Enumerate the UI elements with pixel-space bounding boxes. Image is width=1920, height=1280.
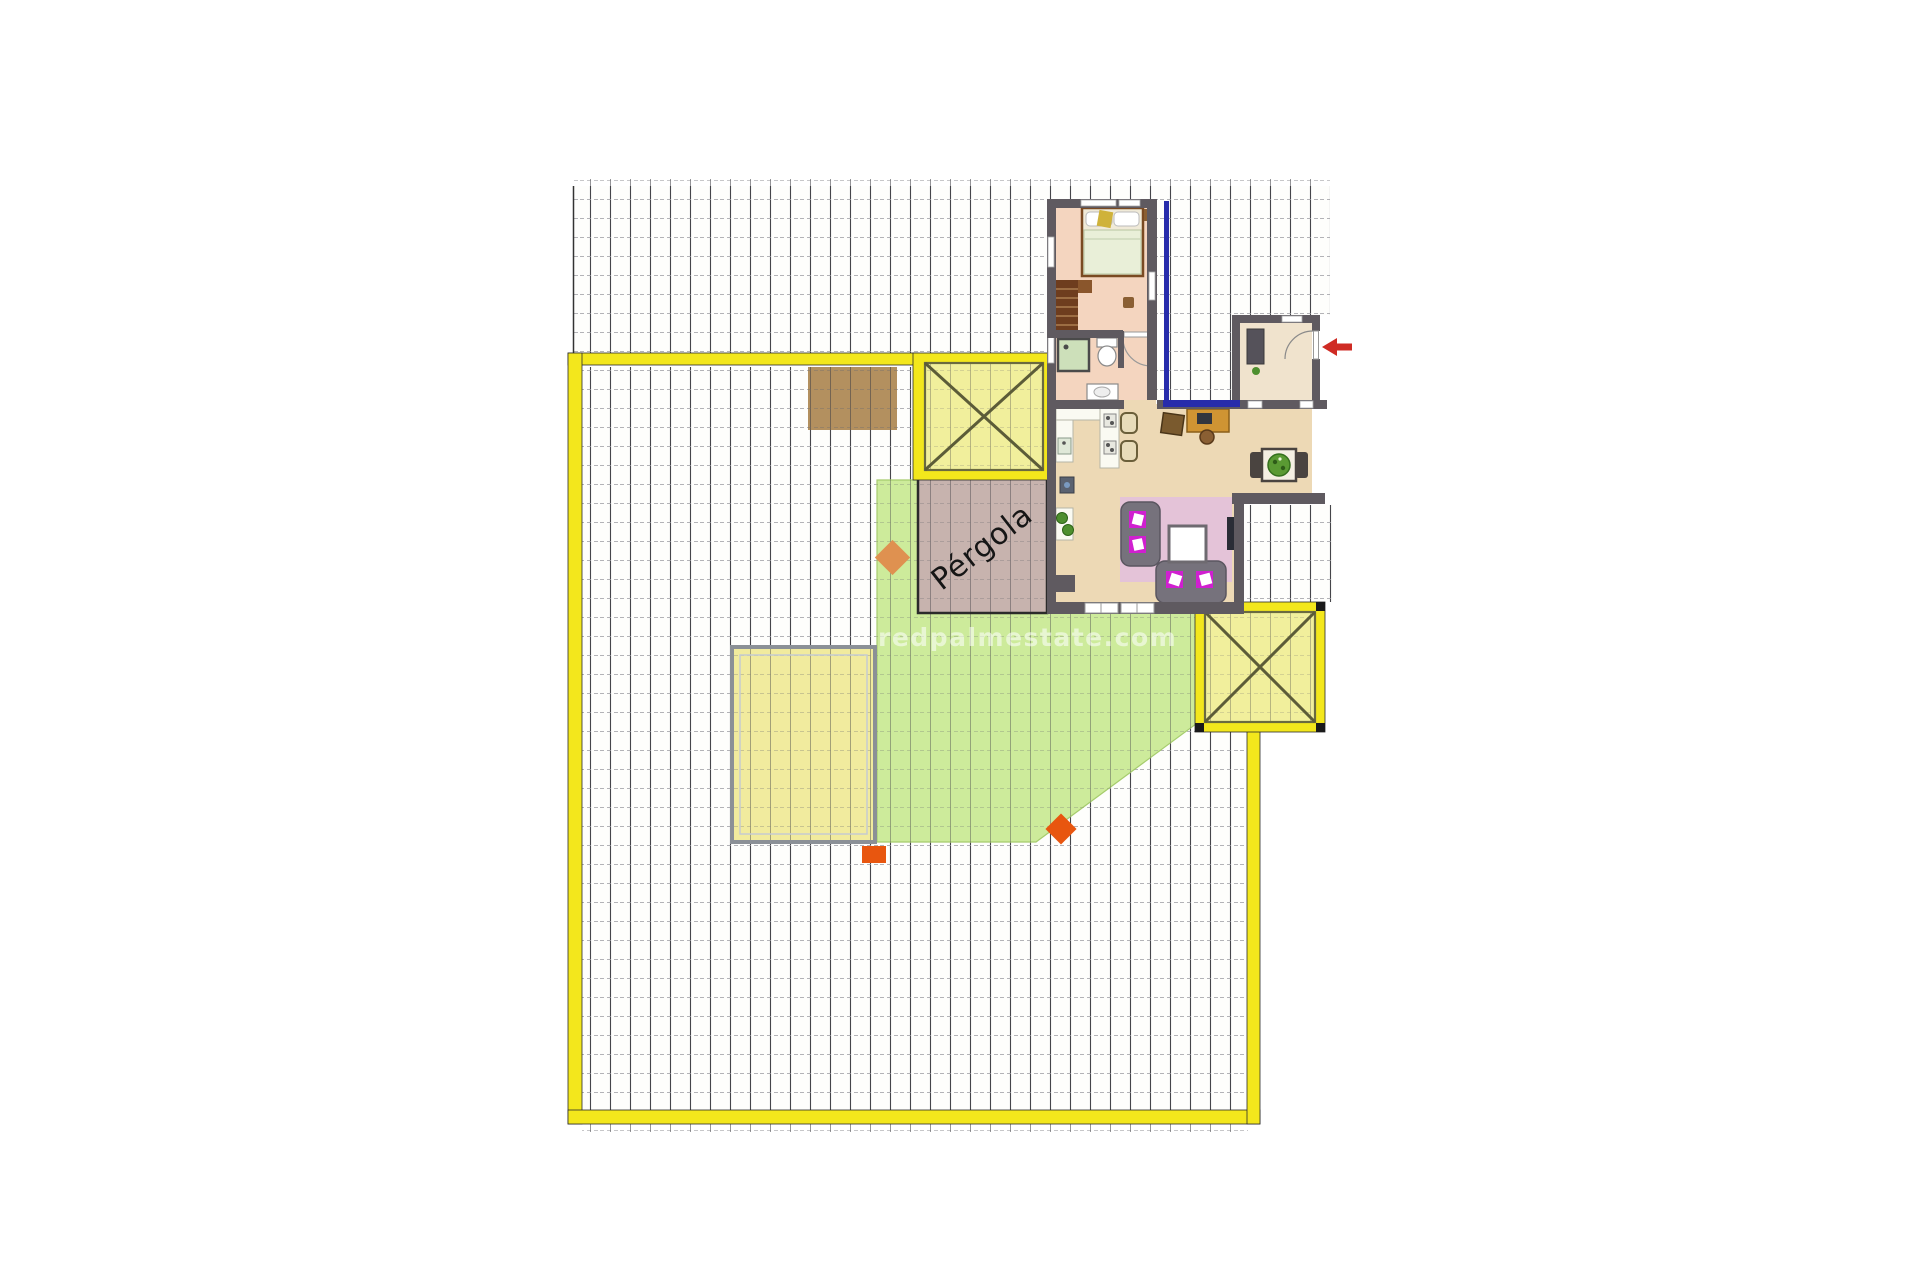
boundary-bottom-band xyxy=(568,1110,1260,1124)
sink-faucet xyxy=(1062,441,1066,445)
entrance-cabinet xyxy=(1247,329,1264,364)
terrace-edge-line-vertical xyxy=(1164,201,1169,407)
wall-bedroom-bathroom xyxy=(1047,330,1123,338)
sofa-horizontal xyxy=(1156,561,1226,603)
brown-patch-grid xyxy=(808,367,897,430)
floor-plan-page: Pérgola xyxy=(0,0,1920,1280)
decor-cushion xyxy=(1097,210,1114,228)
bedroom-stool xyxy=(1123,297,1134,308)
wall-bedroom-left xyxy=(1047,199,1056,409)
potted-plant xyxy=(1063,525,1074,536)
floor-plan-drawing: Pérgola xyxy=(0,0,1920,1280)
hob-burner xyxy=(1106,416,1110,420)
wall-bathroom-bottom xyxy=(1047,400,1124,409)
wall-entrance-right-upper xyxy=(1312,315,1320,331)
skylight2-corner-tr xyxy=(1316,602,1325,611)
hob xyxy=(1104,441,1116,454)
window xyxy=(1149,272,1155,300)
sink-basin xyxy=(1094,387,1110,397)
window xyxy=(1081,200,1116,206)
shower xyxy=(1058,339,1089,371)
wall-entrance-left xyxy=(1232,315,1240,400)
hob-burner xyxy=(1110,448,1114,452)
living-corner-column xyxy=(1056,575,1075,592)
plant-leaf xyxy=(1281,466,1285,470)
sofa-vertical xyxy=(1121,502,1160,566)
bar-chair xyxy=(1121,413,1137,433)
plant-leaf xyxy=(1273,460,1277,464)
upper-terrace-grid xyxy=(573,186,1330,315)
skylight2-corner-bl xyxy=(1195,723,1204,732)
hob-burner xyxy=(1106,443,1110,447)
entrance-door-leaf xyxy=(1314,331,1319,359)
wall-living-right xyxy=(1234,504,1244,614)
pergola: Pérgola xyxy=(918,478,1047,613)
side-cabinet xyxy=(1161,413,1185,436)
desk-stool xyxy=(1200,430,1214,444)
bar-chair xyxy=(1121,441,1137,461)
stairs xyxy=(1053,280,1078,330)
shower-drain xyxy=(1064,345,1069,350)
tv-unit xyxy=(1227,517,1235,550)
table-plant xyxy=(1268,454,1290,476)
kitchen-sink xyxy=(1058,438,1071,454)
brown-paved-patch xyxy=(808,367,897,430)
bed-pillow xyxy=(1114,212,1139,226)
southeast-terrace-grid xyxy=(1245,505,1333,602)
wall-living-left xyxy=(1047,403,1056,614)
grid-top-fringe xyxy=(573,179,1330,187)
wall-bathroom-hall xyxy=(1118,331,1124,368)
potted-plant xyxy=(1057,513,1068,524)
boundary-top-band xyxy=(568,353,918,365)
door-leaf xyxy=(1124,332,1150,337)
oven-window xyxy=(1064,482,1070,488)
wall-entrance-right-lower xyxy=(1312,359,1320,400)
coffee-table xyxy=(1169,526,1206,562)
stair-landing xyxy=(1078,280,1092,293)
skylight-square-upper xyxy=(913,353,1052,480)
toilet-bowl xyxy=(1098,346,1116,366)
entrance-plant xyxy=(1252,367,1260,375)
pool-grid xyxy=(734,649,873,840)
arrow-shaft xyxy=(1337,344,1352,351)
window xyxy=(1300,401,1313,408)
window xyxy=(1048,237,1054,267)
hob-burner xyxy=(1110,421,1114,425)
skylight2-corner-br xyxy=(1316,723,1325,732)
bed-blanket xyxy=(1084,230,1141,274)
hob xyxy=(1104,414,1116,427)
terrace-edge-line-horizontal xyxy=(1163,400,1240,407)
skylight-square-lower xyxy=(1195,602,1325,732)
wall-entrance-top xyxy=(1232,315,1320,323)
laptop xyxy=(1197,413,1212,424)
window xyxy=(1119,200,1140,206)
wall-dining-terrace xyxy=(1232,493,1325,504)
window xyxy=(1282,316,1302,322)
boundary-left-band xyxy=(568,353,582,1124)
boundary-right-band xyxy=(1247,726,1260,1124)
dining-set xyxy=(1250,449,1308,481)
plant-highlight xyxy=(1278,457,1281,460)
kitchen-counter-top xyxy=(1056,408,1104,420)
marker-rect xyxy=(862,846,886,863)
pool xyxy=(732,647,875,842)
grid-bottom-fringe xyxy=(582,1124,1248,1132)
watermark-text: redpalmestate.com xyxy=(878,623,1177,652)
window xyxy=(1248,401,1262,408)
